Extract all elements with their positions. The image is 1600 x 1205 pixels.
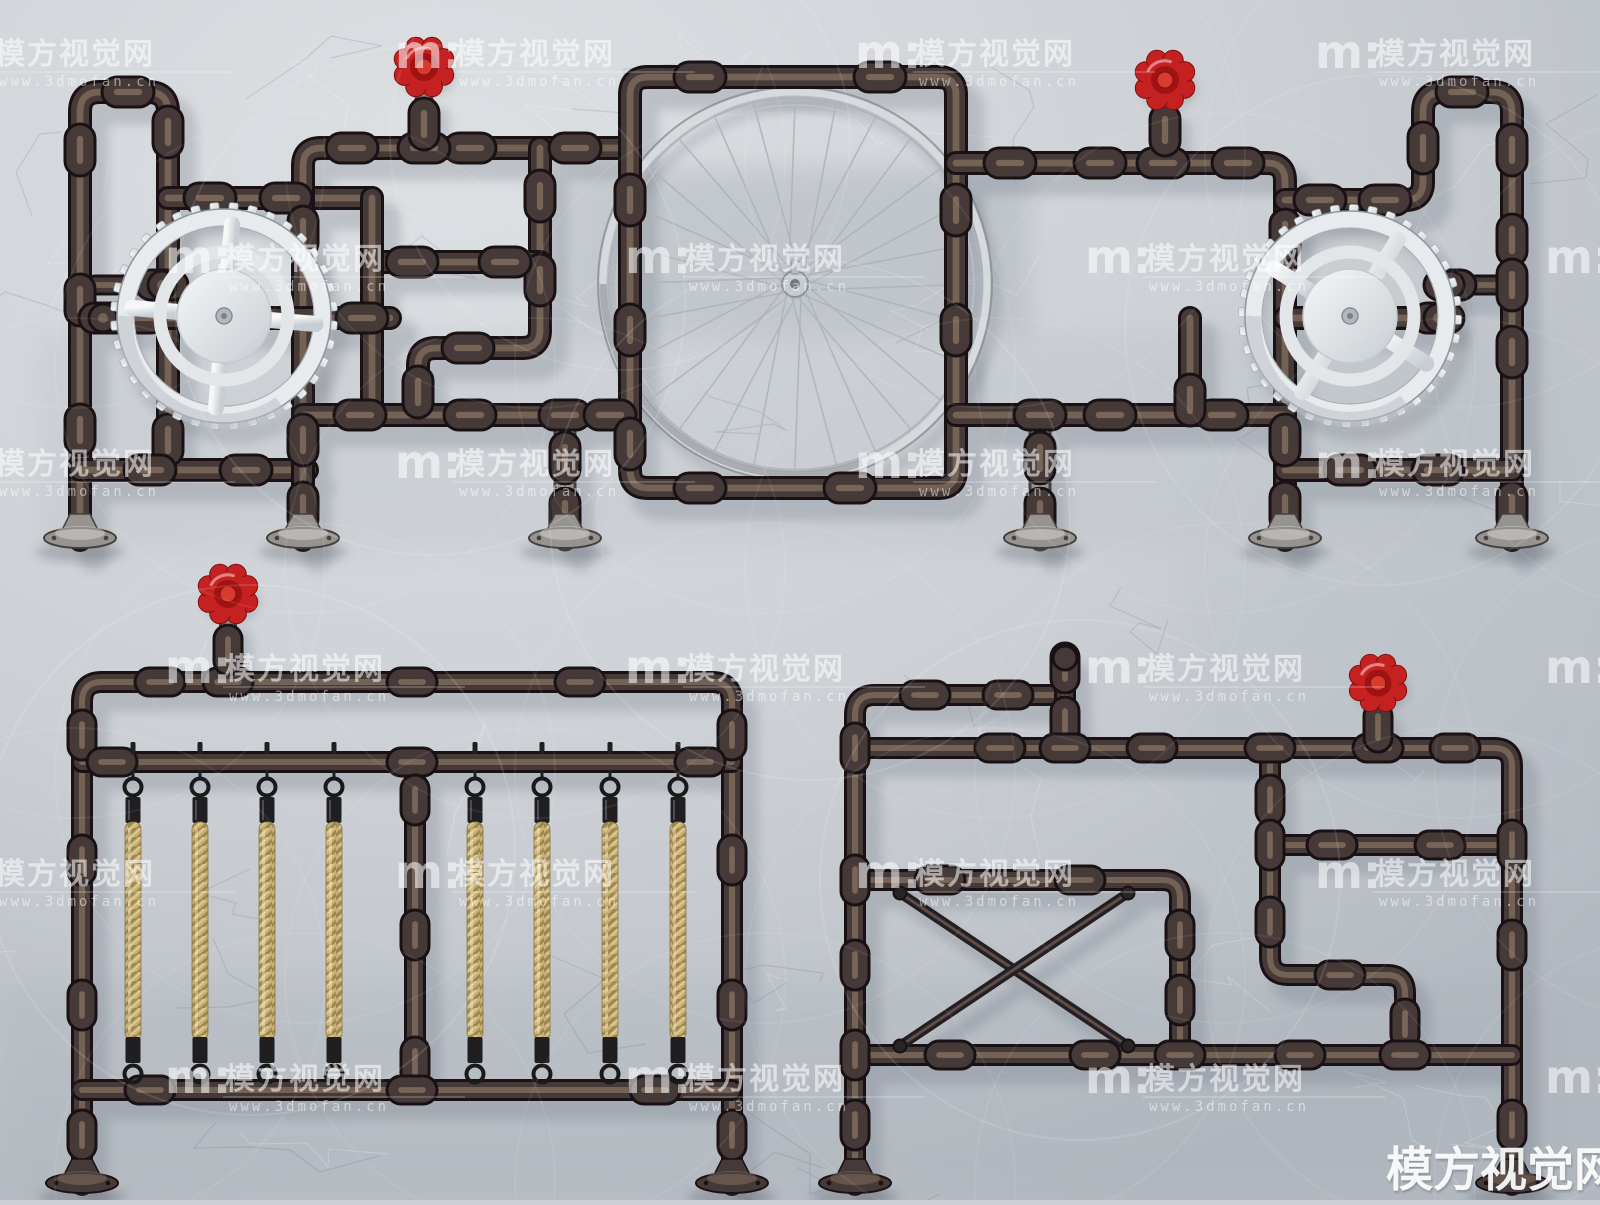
watermark-url: www.3dmofan.cn	[689, 279, 849, 295]
watermark-brand: 模方视觉网	[225, 242, 385, 277]
watermark-url: www.3dmofan.cn	[229, 279, 389, 295]
watermark-logo: m:	[395, 845, 461, 899]
watermark-brand: 模方视觉网	[685, 1062, 845, 1097]
watermark-brand: 模方视觉网	[1375, 447, 1535, 482]
watermark-brand: 模方视觉网	[1375, 37, 1535, 72]
watermark-url: www.3dmofan.cn	[1149, 279, 1309, 295]
watermark-url: www.3dmofan.cn	[0, 894, 159, 910]
watermark-logo: m:	[855, 435, 921, 489]
watermark-logo: m:	[1085, 1050, 1151, 1104]
watermark-url: www.3dmofan.cn	[229, 689, 389, 705]
watermark-logo: m:	[1085, 230, 1151, 284]
watermark-brand: 模方视觉网	[0, 37, 155, 72]
watermark-logo: m:	[625, 1050, 691, 1104]
watermark-logo: m:	[395, 25, 461, 79]
watermark-logo: m:	[625, 230, 691, 284]
watermark-logo: m:	[1315, 845, 1381, 899]
watermark-logo: m:	[855, 25, 921, 79]
watermark-url: www.3dmofan.cn	[689, 689, 849, 705]
watermark-url: www.3dmofan.cn	[1379, 484, 1539, 500]
watermark-url: www.3dmofan.cn	[1149, 689, 1309, 705]
watermark-logo: m:	[1315, 25, 1381, 79]
watermark-brand: 模方视觉网	[1375, 857, 1535, 892]
watermark-brand: 模方视觉网	[455, 857, 615, 892]
watermark-logo: m:	[165, 1050, 231, 1104]
pipe-art-render: m:模方视觉网www.3dmofan.cnm:模方视觉网www.3dmofan.…	[0, 0, 1600, 1200]
watermark-url: www.3dmofan.cn	[1379, 74, 1539, 90]
watermark-url: www.3dmofan.cn	[689, 1099, 849, 1115]
watermark-logo: m:	[1545, 640, 1600, 694]
watermark-brand: 模方视觉网	[915, 37, 1075, 72]
watermark-logo: m:	[1085, 640, 1151, 694]
watermark-brand: 模方视觉网	[1145, 1062, 1305, 1097]
watermark-url: www.3dmofan.cn	[919, 484, 1079, 500]
watermark-brand: 模方视觉网	[455, 447, 615, 482]
watermark-brand: 模方视觉网	[1145, 652, 1305, 687]
watermark-url: www.3dmofan.cn	[459, 74, 619, 90]
watermark-url: www.3dmofan.cn	[1149, 1099, 1309, 1115]
watermark-brand: 模方视觉网	[0, 447, 155, 482]
watermark-url: www.3dmofan.cn	[229, 1099, 389, 1115]
render-canvas: m:模方视觉网www.3dmofan.cnm:模方视觉网www.3dmofan.…	[0, 0, 1600, 1200]
watermark-logo: m:	[1315, 435, 1381, 489]
watermark-logo: m:	[395, 435, 461, 489]
watermark-url: www.3dmofan.cn	[0, 74, 159, 90]
watermark-logo: m:	[1545, 230, 1600, 284]
watermark-brand: 模方视觉网	[915, 447, 1075, 482]
watermark-brand: 模方视觉网	[685, 242, 845, 277]
watermark-brand: 模方视觉网	[225, 652, 385, 687]
watermark-url: www.3dmofan.cn	[459, 894, 619, 910]
watermark-logo: m:	[165, 230, 231, 284]
watermark-logo: m:	[855, 845, 921, 899]
watermark-brand: 模方视觉网	[915, 857, 1075, 892]
watermark-url: www.3dmofan.cn	[0, 484, 159, 500]
corner-watermark: 模方视觉网	[1386, 1142, 1600, 1200]
watermark-url: www.3dmofan.cn	[1379, 894, 1539, 910]
watermark-logo: m:	[625, 640, 691, 694]
watermark-logo: m:	[165, 640, 231, 694]
render-page: { "watermark": { "logo_text": "m:", "bra…	[0, 0, 1600, 1200]
watermark-brand: 模方视觉网	[455, 37, 615, 72]
watermark-brand: 模方视觉网	[1145, 242, 1305, 277]
watermark-url: www.3dmofan.cn	[919, 74, 1079, 90]
watermark-brand: 模方视觉网	[685, 652, 845, 687]
watermark-url: www.3dmofan.cn	[459, 484, 619, 500]
watermark-brand: 模方视觉网	[0, 857, 155, 892]
watermark-brand: 模方视觉网	[225, 1062, 385, 1097]
watermark-url: www.3dmofan.cn	[919, 894, 1079, 910]
watermark-logo: m:	[1545, 1050, 1600, 1104]
